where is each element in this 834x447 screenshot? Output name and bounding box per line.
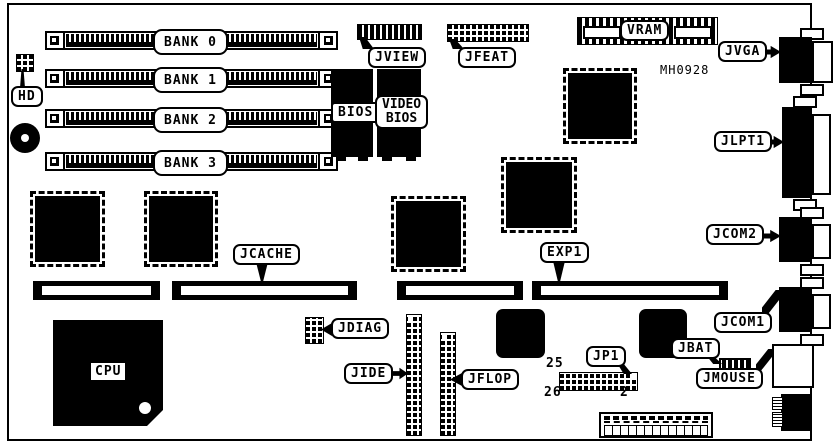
jp1-label: JP1 [586, 346, 626, 367]
com1-port [779, 287, 812, 332]
simm-socket-bank0: BANK 0 [45, 31, 338, 50]
hd-pin-header [16, 54, 34, 72]
vram-label: VRAM [620, 20, 669, 41]
jide-pin-header [406, 314, 422, 436]
jdiag-label: JDIAG [331, 318, 389, 339]
com2-dsub-shell [812, 224, 831, 259]
exp1-label: EXP1 [540, 242, 589, 263]
expansion-slot-2 [532, 281, 728, 300]
bank1-label: BANK 1 [153, 67, 228, 93]
chip-foot [336, 157, 346, 161]
simm-endcap [318, 33, 336, 48]
simm-socket-bank1: BANK 1 [45, 69, 338, 88]
latch-icon [50, 157, 59, 166]
simm-endcap [47, 111, 65, 126]
square-chip-1 [496, 309, 545, 358]
jcache-label: JCACHE [233, 244, 300, 265]
jmouse-label: JMOUSE [696, 368, 763, 389]
bios-label: BIOS [331, 102, 380, 123]
bank0-label: BANK 0 [153, 29, 228, 55]
slot-opening [406, 286, 514, 295]
video-bios-label-line2: BIOS [386, 112, 417, 126]
chip-foot [406, 157, 416, 161]
com2-port [779, 217, 812, 262]
cache-slot-1 [33, 281, 160, 300]
latch-icon [324, 157, 333, 166]
chip-foot [382, 157, 392, 161]
vram-chip-socket [583, 26, 621, 39]
mounting-hole [10, 123, 40, 153]
jbat-label: JBAT [671, 338, 720, 359]
power-pin-row [604, 416, 708, 420]
lpt-dsub-shell [812, 114, 831, 195]
motherboard-diagram: BANK 0 BANK 1 BANK 2 BANK 3 HD JVIEW JFE… [0, 0, 834, 447]
latch-icon [324, 36, 333, 45]
expansion-slot-1 [397, 281, 523, 300]
power-socket-row [604, 425, 708, 436]
chip-foot [358, 157, 368, 161]
cpu-pin1-dot [139, 402, 151, 414]
jdiag-pin-header [305, 317, 324, 344]
simm-socket-bank2: BANK 2 [45, 109, 338, 128]
jp1-pin26-number: 26 [544, 385, 562, 400]
pin1-marker [442, 334, 447, 339]
jvga-label: JVGA [718, 41, 767, 62]
video-bios-label: VIDEO BIOS [375, 95, 428, 129]
jp1-pin2-number: 2 [620, 385, 629, 400]
pin1-marker [408, 316, 413, 321]
jp1-pin25-number: 25 [546, 356, 564, 371]
board-part-number: MH0928 [660, 63, 709, 77]
jide-label: JIDE [344, 363, 393, 384]
latch-icon [50, 74, 59, 83]
jview-pin-header [357, 24, 422, 40]
power-divider [604, 421, 708, 423]
keyboard-plug-icon [772, 412, 783, 427]
vga-dsub-shell [812, 41, 833, 83]
jfeat-pin-header [447, 24, 529, 42]
jlpt1-label: JLPT1 [714, 131, 772, 152]
slot-opening [541, 286, 719, 295]
keyboard-port [781, 394, 812, 431]
qfp-chip-4 [506, 162, 572, 228]
cpu-label: CPU [89, 361, 127, 382]
jflop-label: JFLOP [461, 369, 519, 390]
bank3-label: BANK 3 [153, 150, 228, 176]
jcom1-label: JCOM1 [714, 312, 772, 333]
simm-endcap [47, 33, 65, 48]
hd-label: HD [11, 86, 43, 107]
com1-dsub-shell [812, 294, 831, 329]
pin1-marker [631, 374, 636, 379]
jflop-pin-header [440, 332, 456, 436]
simm-endcap [47, 154, 65, 169]
keyboard-plug-icon [772, 397, 783, 410]
latch-icon [50, 114, 59, 123]
bank2-label: BANK 2 [153, 107, 228, 133]
vram-chip-socket [674, 26, 712, 39]
slot-opening [181, 286, 348, 295]
slot-opening [42, 286, 151, 295]
latch-icon [50, 36, 59, 45]
parallel-port [782, 107, 812, 198]
simm-socket-bank3: BANK 3 [45, 152, 338, 171]
qfp-chip-2 [149, 196, 213, 262]
qfp-chip-3 [396, 201, 461, 267]
qfp-chip-1 [35, 196, 100, 262]
power-connector [599, 412, 713, 438]
jview-label: JVIEW [368, 47, 426, 68]
qfp-chip-5 [568, 73, 632, 139]
jfeat-label: JFEAT [458, 47, 516, 68]
jcom2-label: JCOM2 [706, 224, 764, 245]
port-mount-tab [800, 84, 824, 96]
vga-port [779, 37, 812, 83]
port-mount-tab [800, 264, 824, 276]
cache-slot-2 [172, 281, 357, 300]
simm-endcap [47, 71, 65, 86]
mouse-port [772, 344, 814, 388]
video-bios-label-line1: VIDEO [382, 98, 421, 112]
